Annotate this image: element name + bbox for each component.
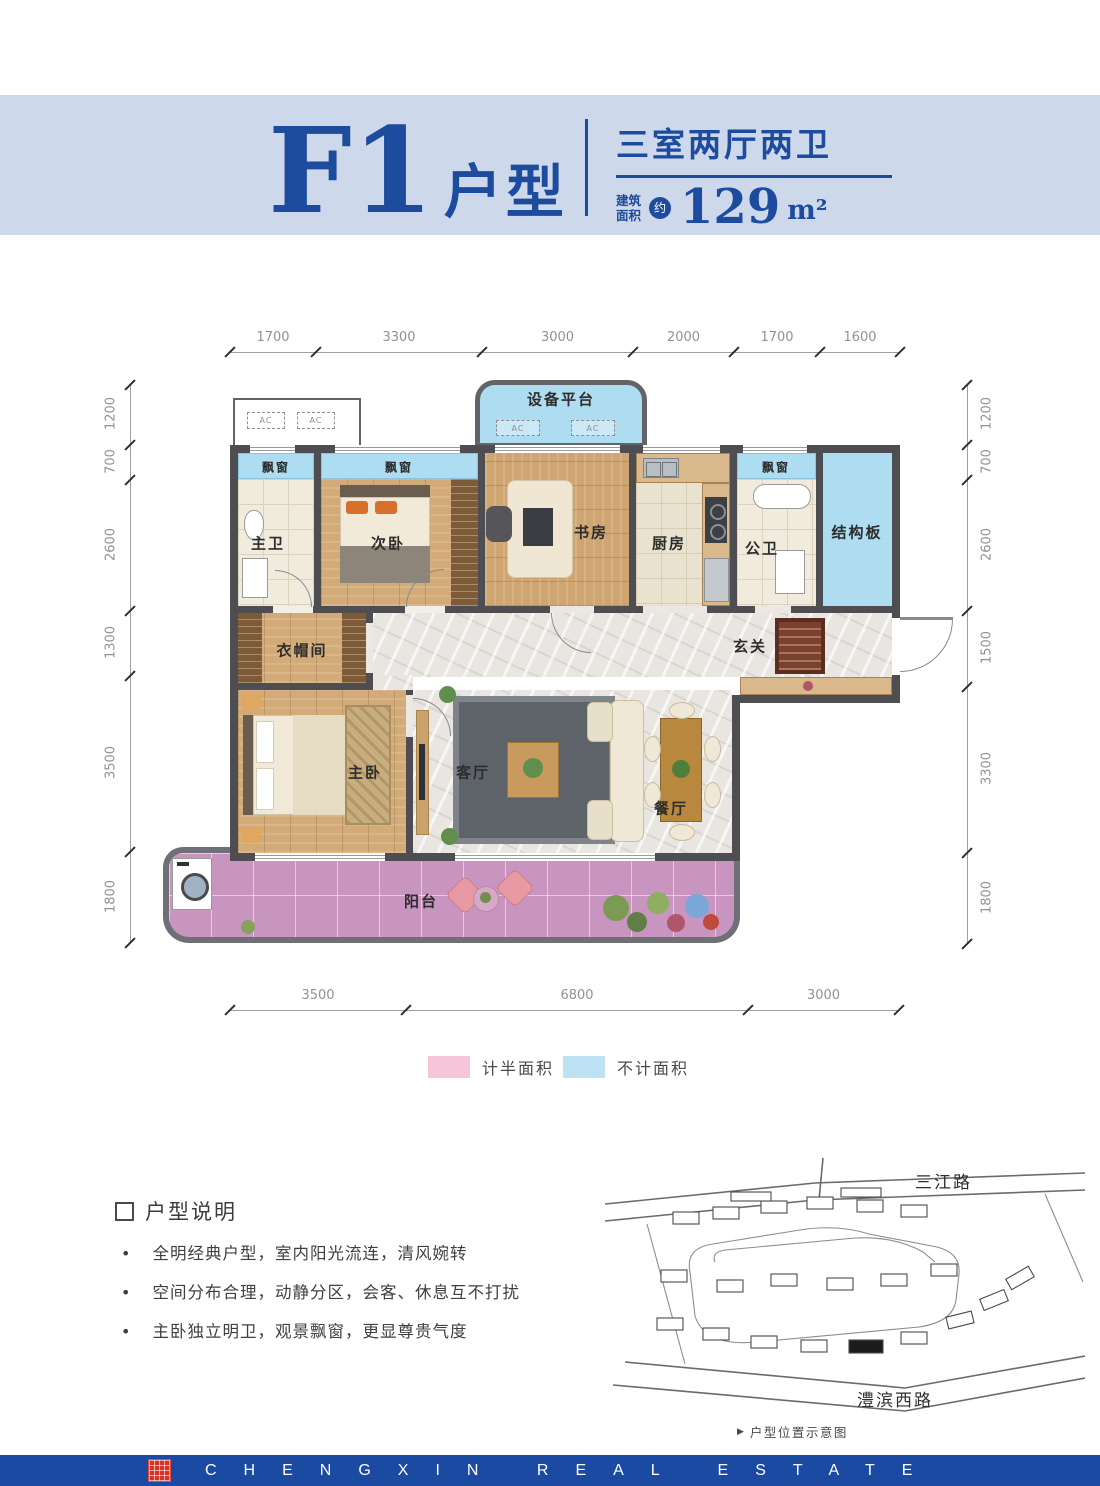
legend-label-excluded-area: 不计面积 (617, 1055, 689, 1079)
bullet-icon: • (121, 1283, 130, 1302)
site-map-caption: 户型位置示意图 (750, 1422, 848, 1441)
dimension-label: 6800 (545, 988, 609, 1003)
dimension-label: 3000 (526, 330, 590, 345)
company-seal-icon (148, 1459, 171, 1482)
legend-swatch-excluded-area (563, 1056, 605, 1078)
bullet-icon: • (121, 1322, 130, 1341)
dimension-label: 2000 (652, 330, 716, 345)
legend-excluded-area: 不计面积 (563, 1055, 689, 1079)
dimension-label: 1700 (241, 330, 305, 345)
dimension-label: 1700 (745, 330, 809, 345)
site-map: 三江路 澧滨西路 (605, 1152, 1085, 1424)
road-label-bottom: 澧滨西路 (857, 1391, 933, 1411)
dimension-label: 3500 (286, 988, 350, 1003)
notes-title: 户型说明 (145, 1196, 237, 1226)
dimension-label: 2600 (104, 512, 119, 576)
dimension-label: 1300 (104, 610, 119, 674)
dimension-label: 1800 (104, 864, 119, 928)
dimension-label: 3300 (367, 330, 431, 345)
dimension-label: 2600 (980, 512, 995, 576)
dimension-label: 3300 (980, 737, 995, 801)
note-item: •空间分布合理，动静分区，会客、休息互不打扰 (121, 1279, 520, 1303)
dimension-mark (130, 385, 131, 943)
legend-half-area: 计半面积 (428, 1055, 554, 1079)
legend-label-half-area: 计半面积 (482, 1055, 554, 1079)
footer-bar: CHENGXIN REAL ESTATE (0, 1455, 1100, 1486)
note-item: •主卧独立明卫，观景飘窗，更显尊贵气度 (121, 1318, 467, 1342)
bullet-icon: • (121, 1244, 130, 1263)
dimension-label: 1800 (980, 865, 995, 929)
dimension-label: 3500 (104, 731, 119, 795)
dimension-label: 700 (980, 429, 995, 493)
highlighted-building (849, 1340, 883, 1353)
dimension-label: 1500 (980, 616, 995, 680)
dimension-label: 3000 (792, 988, 856, 1003)
square-bullet-icon (115, 1202, 134, 1221)
dimension-label: 700 (104, 429, 119, 493)
dimension-label: 1600 (828, 330, 892, 345)
dimension-mark (230, 1010, 899, 1011)
legend-swatch-half-area (428, 1056, 470, 1078)
site-map-caption-row: ▶ 户型位置示意图 (737, 1422, 848, 1441)
dimension-mark (230, 352, 900, 353)
footer-brand-text: CHENGXIN REAL ESTATE (205, 1455, 939, 1486)
note-item: •全明经典户型，室内阳光流连，清风婉转 (121, 1240, 467, 1264)
caption-marker-icon: ▶ (737, 1427, 744, 1437)
road-label-top: 三江路 (915, 1173, 972, 1193)
site-buildings (657, 1188, 1034, 1353)
flyer-page: F1 户型 三室两厅两卫 建筑 面积 约 129 m² (0, 0, 1100, 1486)
notes-title-row: 户型说明 (115, 1196, 237, 1226)
dimension-mark (967, 385, 968, 944)
